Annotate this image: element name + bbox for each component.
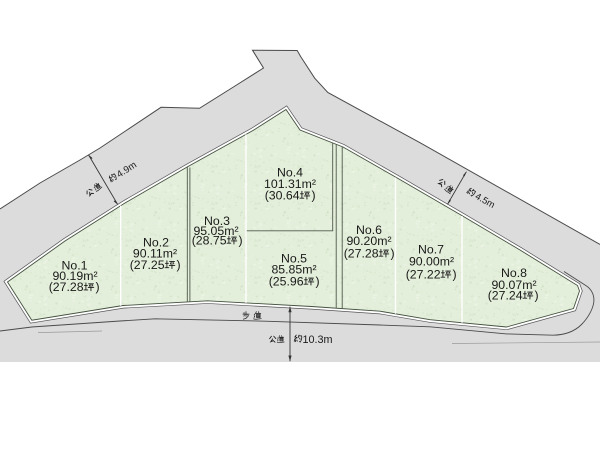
svg-text:(28.75: (28.75 [192,234,227,248]
svg-text:): ) [177,258,181,272]
svg-text:(30.64: (30.64 [265,189,300,203]
svg-text:10.3m: 10.3m [303,334,333,346]
svg-text:): ) [96,280,100,294]
svg-text:90.00m²: 90.00m² [409,255,454,269]
svg-text:(27.25: (27.25 [130,258,165,272]
svg-text:(27.22: (27.22 [406,268,441,282]
svg-text:): ) [239,234,243,248]
svg-text:): ) [316,275,320,289]
svg-text:): ) [391,247,395,261]
svg-text:(27.28: (27.28 [49,280,84,294]
svg-text:(27.28: (27.28 [344,247,379,261]
svg-text:): ) [535,289,539,303]
svg-text:(25.96: (25.96 [269,275,304,289]
svg-text:(27.24: (27.24 [488,289,523,303]
svg-text:): ) [453,268,457,282]
svg-text:): ) [312,189,316,203]
